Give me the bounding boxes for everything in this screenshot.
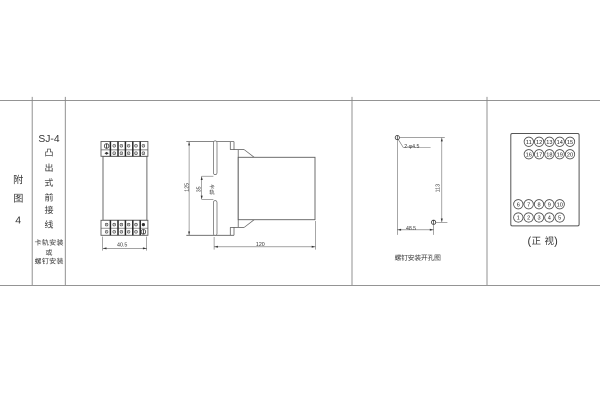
svg-text:9: 9 xyxy=(548,202,551,208)
svg-text:1: 1 xyxy=(517,216,520,222)
svg-text:16: 16 xyxy=(526,152,532,158)
svg-text:12: 12 xyxy=(536,140,542,146)
svg-text:18: 18 xyxy=(546,152,552,158)
svg-text:13: 13 xyxy=(546,140,552,146)
svg-text:): ) xyxy=(554,235,558,247)
svg-text:(: ( xyxy=(527,235,531,247)
svg-text:20: 20 xyxy=(567,152,573,158)
svg-text:15: 15 xyxy=(567,140,573,146)
svg-text:11: 11 xyxy=(526,140,532,146)
svg-text:48.5: 48.5 xyxy=(406,226,416,232)
svg-text:2-φ4.5: 2-φ4.5 xyxy=(404,144,419,150)
svg-text:8: 8 xyxy=(537,202,540,208)
svg-text:7: 7 xyxy=(527,202,530,208)
svg-text:125: 125 xyxy=(185,183,191,192)
svg-text:19: 19 xyxy=(557,152,563,158)
svg-text:6: 6 xyxy=(517,202,520,208)
svg-text:17: 17 xyxy=(536,152,542,158)
svg-text:35: 35 xyxy=(197,186,203,192)
svg-text:40.5: 40.5 xyxy=(117,242,127,248)
svg-text:113: 113 xyxy=(436,184,442,192)
svg-text:120: 120 xyxy=(256,242,265,248)
svg-text:4: 4 xyxy=(15,214,21,226)
svg-text:5: 5 xyxy=(558,216,561,222)
svg-text:2: 2 xyxy=(527,216,530,222)
svg-text:4: 4 xyxy=(548,216,551,222)
svg-text:14: 14 xyxy=(557,140,563,146)
svg-text:SJ-4: SJ-4 xyxy=(38,134,59,145)
svg-text:3: 3 xyxy=(537,216,540,222)
svg-text:10: 10 xyxy=(557,202,563,208)
